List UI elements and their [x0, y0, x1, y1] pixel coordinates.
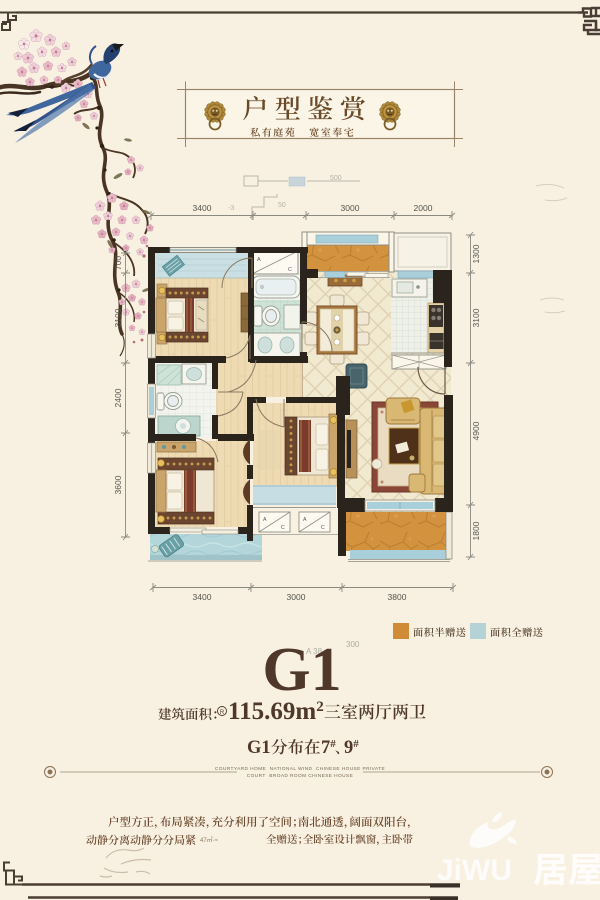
svg-text:JiWU: JiWU [437, 854, 512, 887]
svg-text:1800: 1800 [471, 521, 481, 540]
svg-text:1300: 1300 [471, 244, 481, 263]
svg-text:50: 50 [278, 202, 286, 209]
svg-text:2000: 2000 [414, 203, 433, 213]
svg-text:300: 300 [346, 640, 360, 649]
svg-text:115.69m2: 115.69m2 [228, 698, 324, 725]
svg-text:3100: 3100 [471, 308, 481, 327]
svg-text:COURTYARD HOME NATIONAL WIND: COURTYARD HOME NATIONAL WIND CHINESE HOU… [215, 766, 385, 772]
svg-text:A: A [257, 257, 261, 263]
svg-text:COURT BROAD ROOM CHINESE HOUS: COURT BROAD ROOM CHINESE HOUSE [247, 773, 353, 779]
svg-text:500: 500 [330, 175, 342, 182]
svg-text:-3: -3 [228, 205, 234, 212]
svg-text:3000: 3000 [287, 592, 306, 602]
svg-text:3400: 3400 [193, 592, 212, 602]
svg-text:3800: 3800 [388, 592, 407, 602]
svg-text:2400: 2400 [113, 388, 123, 407]
svg-text:3000: 3000 [341, 203, 360, 213]
svg-text:C: C [321, 525, 325, 531]
svg-text:4900: 4900 [471, 421, 481, 440]
svg-text:G1: G1 [262, 636, 341, 704]
svg-text:3600: 3600 [113, 475, 123, 494]
svg-text:3400: 3400 [193, 203, 212, 213]
svg-text:C: C [288, 267, 292, 273]
svg-text:47㎡·≈: 47㎡·≈ [200, 836, 219, 844]
svg-text:A: A [263, 517, 267, 523]
svg-text:3100: 3100 [113, 308, 123, 327]
svg-text:C: C [281, 525, 285, 531]
svg-text:G1: G1 [247, 738, 271, 758]
svg-text:A: A [303, 517, 307, 523]
svg-text:700: 700 [113, 256, 123, 270]
svg-text:R: R [220, 710, 225, 716]
